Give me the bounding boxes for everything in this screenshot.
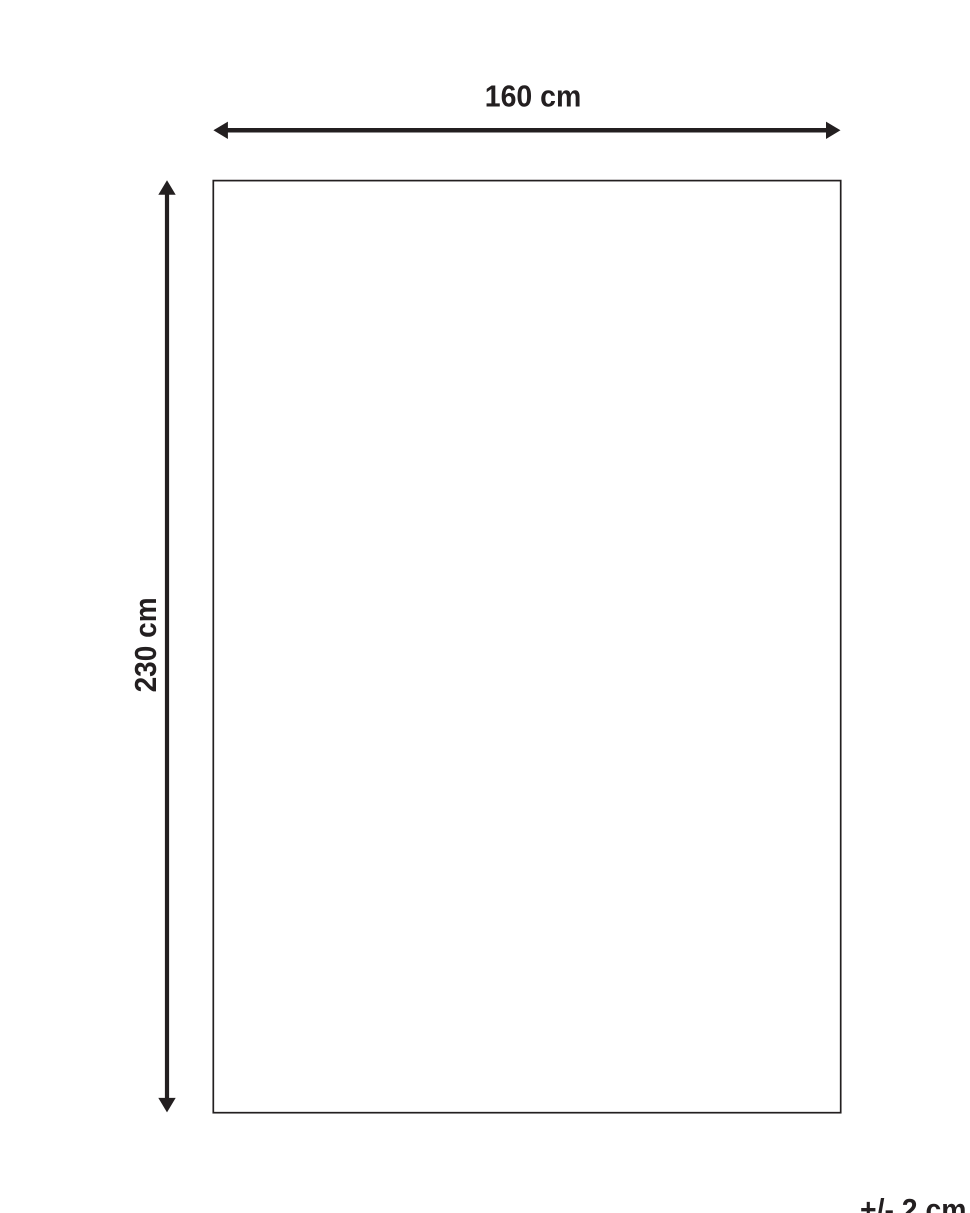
svg-text:160 cm: 160 cm <box>485 79 582 114</box>
svg-text:230 cm: 230 cm <box>128 597 163 692</box>
svg-text:+/- 2 cm: +/- 2 cm <box>860 1192 967 1213</box>
